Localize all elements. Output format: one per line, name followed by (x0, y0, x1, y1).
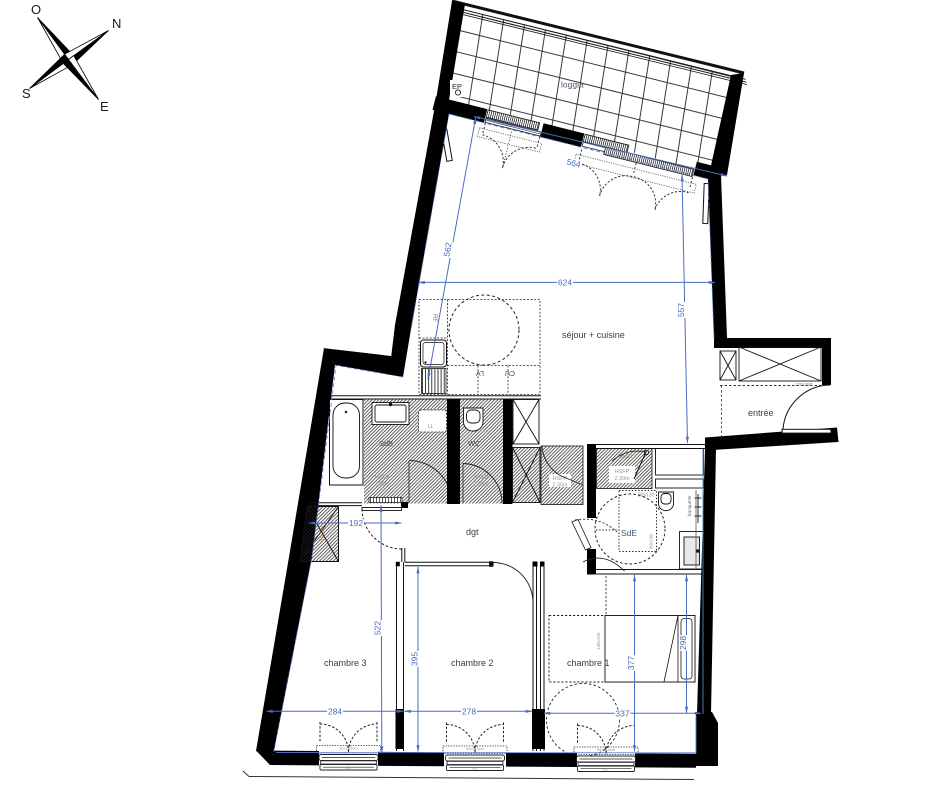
svg-text:2.50m: 2.50m (374, 482, 390, 488)
svg-text:2.30m: 2.30m (552, 483, 568, 489)
svg-text:chambre 2: chambre 2 (451, 658, 494, 668)
svg-text:522: 522 (373, 621, 383, 635)
svg-text:90x215cm: 90x215cm (466, 746, 485, 751)
svg-text:RC: RC (603, 767, 609, 771)
svg-text:557: 557 (676, 303, 686, 317)
svg-text:337: 337 (615, 708, 629, 718)
svg-text:140x190: 140x190 (596, 632, 601, 650)
svg-text:HSFP: HSFP (474, 475, 489, 481)
svg-text:RC: RC (346, 766, 352, 770)
svg-text:278: 278 (462, 706, 476, 716)
svg-text:80x130: 80x130 (649, 533, 654, 549)
svg-text:banquette: banquette (687, 495, 692, 516)
svg-text:377: 377 (626, 656, 636, 670)
svg-text:90x215cm: 90x215cm (597, 747, 616, 752)
svg-text:S: S (22, 86, 31, 101)
svg-text:2.30m: 2.30m (614, 476, 630, 482)
svg-text:SdB: SdB (379, 439, 393, 448)
svg-text:HSFP: HSFP (553, 476, 568, 482)
svg-text:SdE: SdE (621, 528, 637, 538)
svg-text:entrée: entrée (748, 408, 774, 418)
svg-text:CU: CU (505, 369, 515, 376)
svg-text:HSFP: HSFP (375, 475, 390, 481)
svg-text:E: E (100, 99, 109, 114)
svg-text:LL: LL (428, 424, 434, 430)
svg-text:N: N (112, 16, 121, 31)
svg-text:O: O (31, 2, 41, 17)
svg-text:HSFP: HSFP (615, 469, 630, 475)
svg-text:90x215cm: 90x215cm (339, 746, 358, 751)
svg-text:LV: LV (476, 369, 484, 376)
svg-text:192: 192 (349, 518, 363, 528)
svg-text:dgt: dgt (466, 527, 479, 537)
svg-text:284: 284 (328, 706, 342, 716)
svg-text:120x250: 120x250 (795, 382, 813, 387)
svg-text:624: 624 (558, 277, 572, 287)
svg-text:RC: RC (472, 766, 478, 770)
svg-text:WC: WC (468, 439, 481, 448)
svg-text:loggia: loggia (561, 80, 584, 90)
svg-text:séjour + cuisine: séjour + cuisine (562, 330, 625, 340)
svg-text:298: 298 (678, 636, 688, 650)
svg-text:RF: RF (431, 314, 437, 322)
svg-text:chambre 3: chambre 3 (324, 658, 367, 668)
svg-text:2.30m: 2.30m (473, 482, 489, 488)
svg-text:395: 395 (410, 652, 420, 666)
svg-text:chambre 1: chambre 1 (567, 658, 610, 668)
